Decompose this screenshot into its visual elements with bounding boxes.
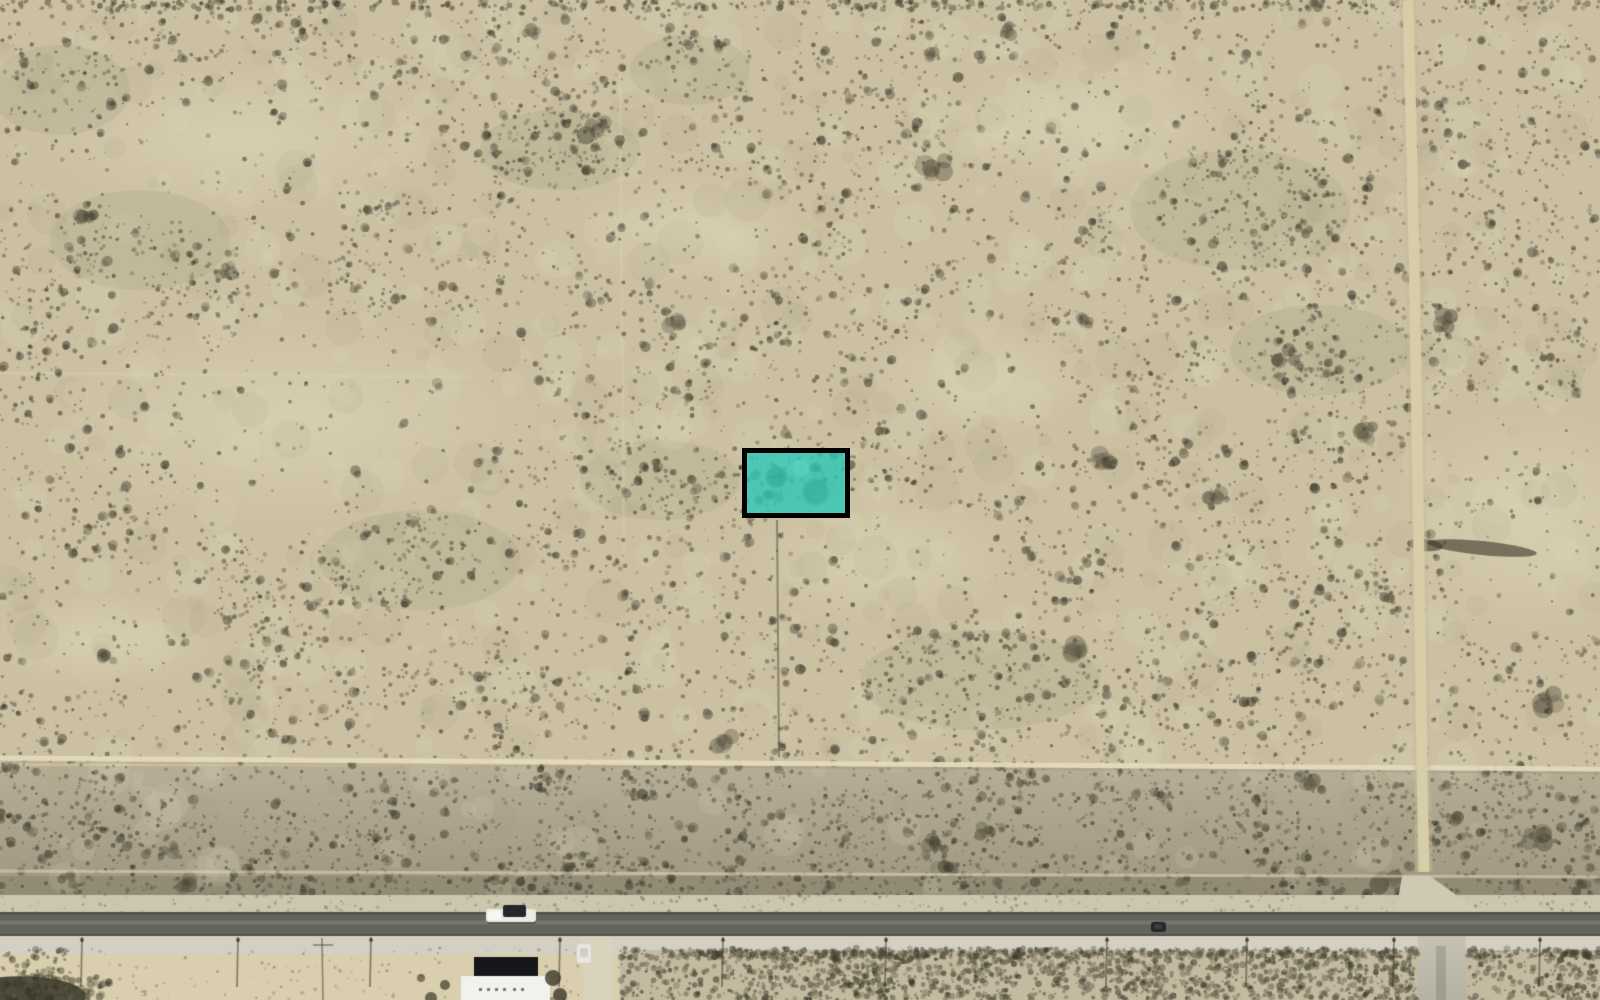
- parcel-highlight[interactable]: [742, 448, 850, 518]
- satellite-map-view[interactable]: [0, 0, 1600, 1000]
